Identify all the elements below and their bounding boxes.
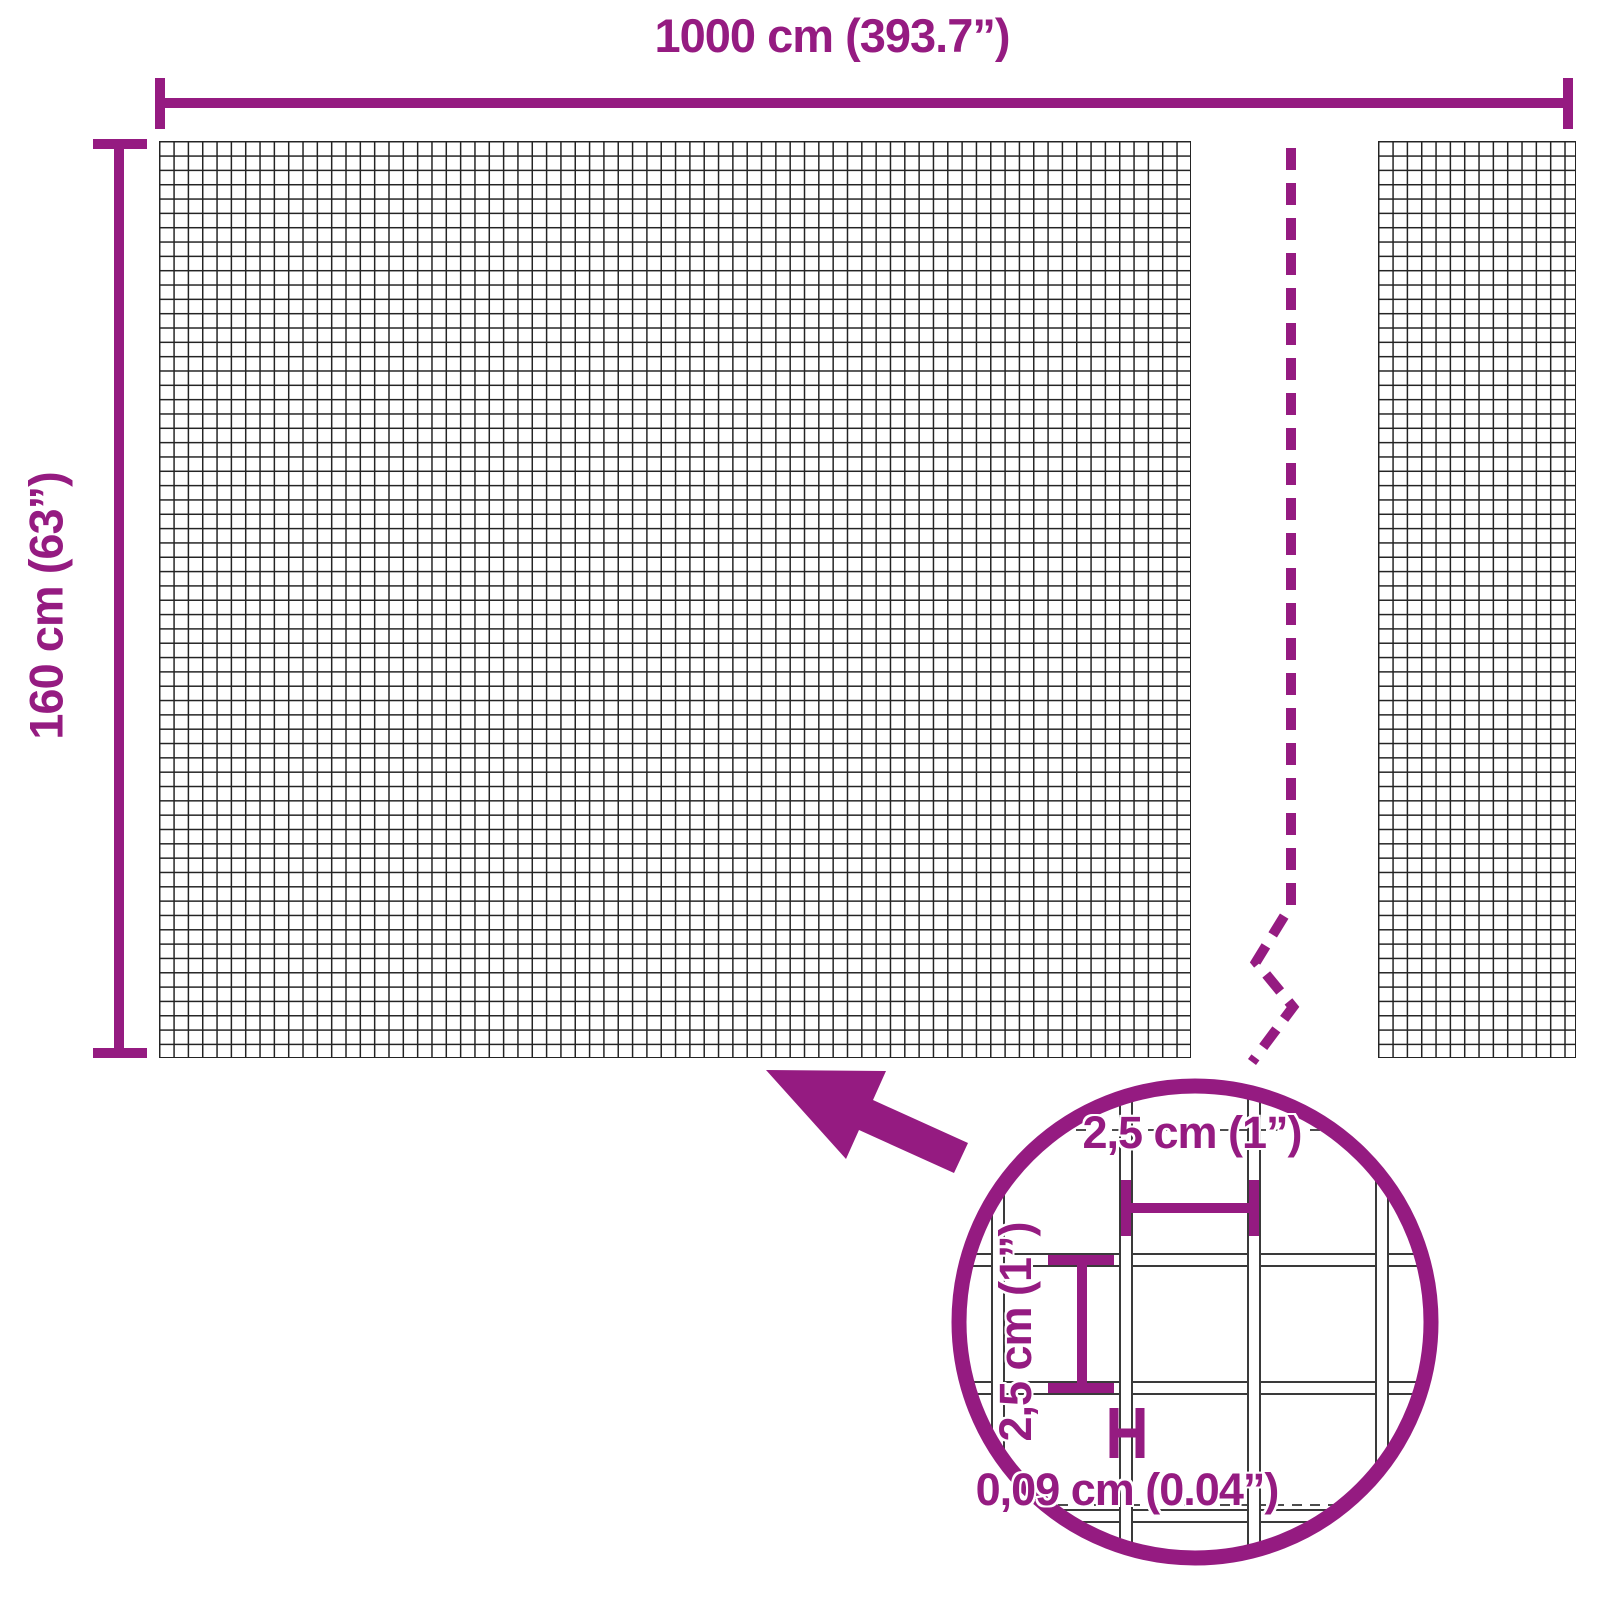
diagram-overlay <box>0 0 1600 1600</box>
height-dimension-line <box>93 144 147 1053</box>
detail-vertical-wire <box>1376 1070 1388 1580</box>
width-dimension-line <box>160 78 1568 129</box>
detail-cell-width-label: 2,5 cm (1”) <box>1082 1107 1301 1159</box>
detail-wire-thickness-label: 0,09 cm (0.04”) <box>976 1464 1279 1516</box>
dimension-diagram: 1000 cm (393.7”) 160 cm (63”) 2,5 cm (1”… <box>0 0 1600 1600</box>
overall-width-label: 1000 cm (393.7”) <box>654 8 1009 63</box>
overall-height-label: 160 cm (63”) <box>19 472 74 740</box>
leader-arrow-icon <box>766 1070 968 1173</box>
break-line-icon <box>1252 148 1293 1062</box>
detail-cell-height-label: 2,5 cm (1”) <box>990 1222 1042 1441</box>
